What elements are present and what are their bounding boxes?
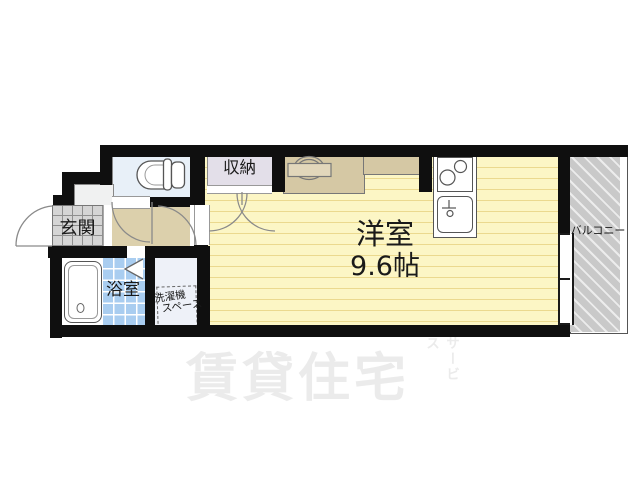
closet-label: 収納 bbox=[207, 159, 272, 176]
wall-hall-room bbox=[190, 145, 205, 205]
closet-door-opening bbox=[207, 185, 272, 194]
wall-bottom bbox=[50, 325, 570, 337]
wall-entrance-stub bbox=[53, 195, 73, 205]
wall-hall-room-stub bbox=[194, 245, 208, 258]
bathtub-inner bbox=[68, 265, 98, 319]
wall-bath-top bbox=[145, 246, 197, 258]
entrance-door-swing bbox=[16, 206, 52, 246]
entrance-label: 玄関 bbox=[52, 220, 103, 239]
shoe-cabinet bbox=[74, 184, 114, 207]
wall-kitchen-stub bbox=[419, 145, 432, 192]
wall-bath-laundry bbox=[145, 258, 155, 326]
window-mullion bbox=[558, 278, 570, 280]
main-room-name: 洋室 bbox=[320, 219, 450, 249]
floorplan: 玄関 浴室 洗濯機 スペース 収納 洋室 9.6帖 バルコニー 賃貸住宅 サービ… bbox=[0, 0, 640, 480]
wall-top bbox=[100, 145, 628, 157]
balcony-label: バルコニー bbox=[569, 225, 627, 237]
wall-closet-right bbox=[272, 145, 285, 192]
toilet-room-floor bbox=[112, 151, 192, 199]
stove-burners-icon bbox=[437, 157, 473, 192]
wall-toilet-bottom bbox=[150, 197, 190, 207]
window-tick-bottom bbox=[558, 323, 570, 325]
bathroom-label: 浴室 bbox=[100, 282, 146, 300]
balcony-hatch bbox=[570, 153, 620, 332]
watermark-sub: サービス bbox=[421, 336, 461, 396]
wall-entrance-bottom bbox=[48, 246, 127, 258]
main-room-size: 9.6帖 bbox=[320, 253, 450, 281]
wall-right bbox=[558, 145, 570, 233]
room-door-opening bbox=[194, 205, 210, 245]
kitchen-counter bbox=[283, 152, 365, 194]
wall-laundry-room bbox=[197, 246, 210, 326]
watermark-main: 賃貸住宅 bbox=[186, 336, 410, 411]
toilet-door-opening bbox=[112, 196, 150, 209]
